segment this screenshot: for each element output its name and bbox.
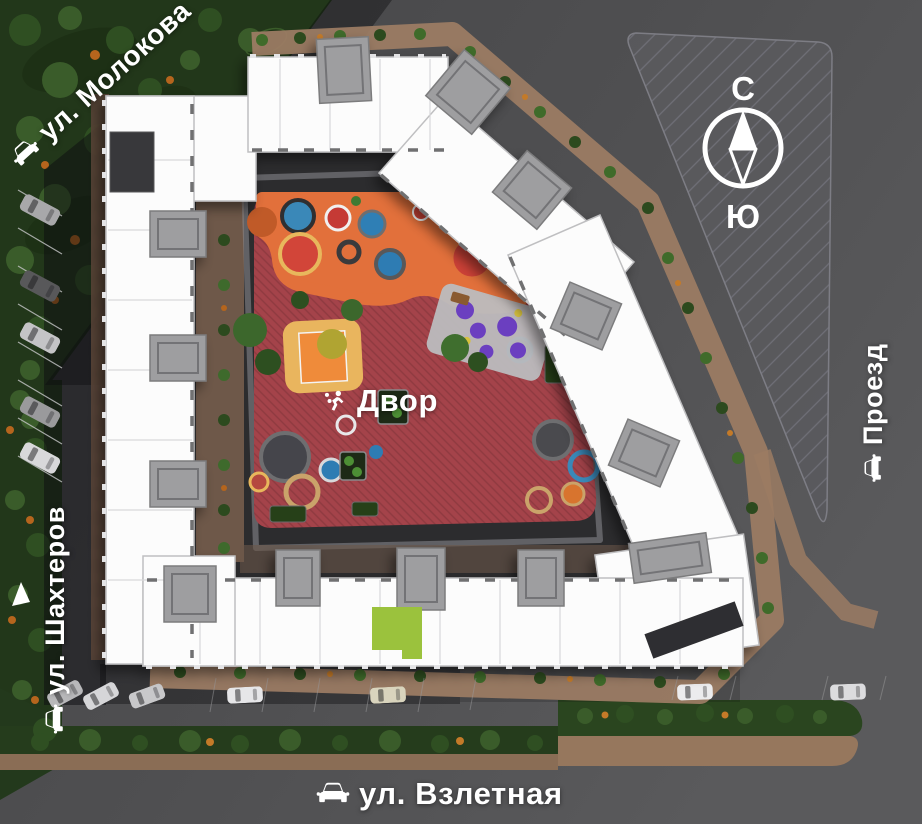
street-label-text: ул. Взлетная xyxy=(359,776,563,812)
car-icon xyxy=(862,454,886,482)
master-plan-map: С Ю ул. Молокова ул. Шахтеров Проезд ул.… xyxy=(0,0,922,824)
street-label-vzletnaya: ул. Взлетная xyxy=(316,776,563,812)
courtyard-label: Двор xyxy=(322,383,438,419)
compass-north-label: С xyxy=(731,70,755,107)
street-label-text: ул. Шахтеров xyxy=(40,506,71,695)
car-icon xyxy=(316,780,350,808)
parked-car xyxy=(370,686,406,704)
road-label-proezd: Проезд xyxy=(858,343,889,482)
car-icon xyxy=(43,704,68,734)
parked-car xyxy=(677,683,713,700)
street-label-shahterov: ул. Шахтеров xyxy=(40,506,71,734)
scene-svg: С Ю xyxy=(0,0,922,824)
playground-person-icon xyxy=(322,388,348,414)
road-label-text: Проезд xyxy=(858,343,889,445)
parked-car xyxy=(830,683,866,700)
compass-south-label: Ю xyxy=(726,198,760,235)
courtyard-label-text: Двор xyxy=(357,383,438,419)
parked-car xyxy=(227,686,263,704)
dark-roof-block xyxy=(110,132,154,192)
